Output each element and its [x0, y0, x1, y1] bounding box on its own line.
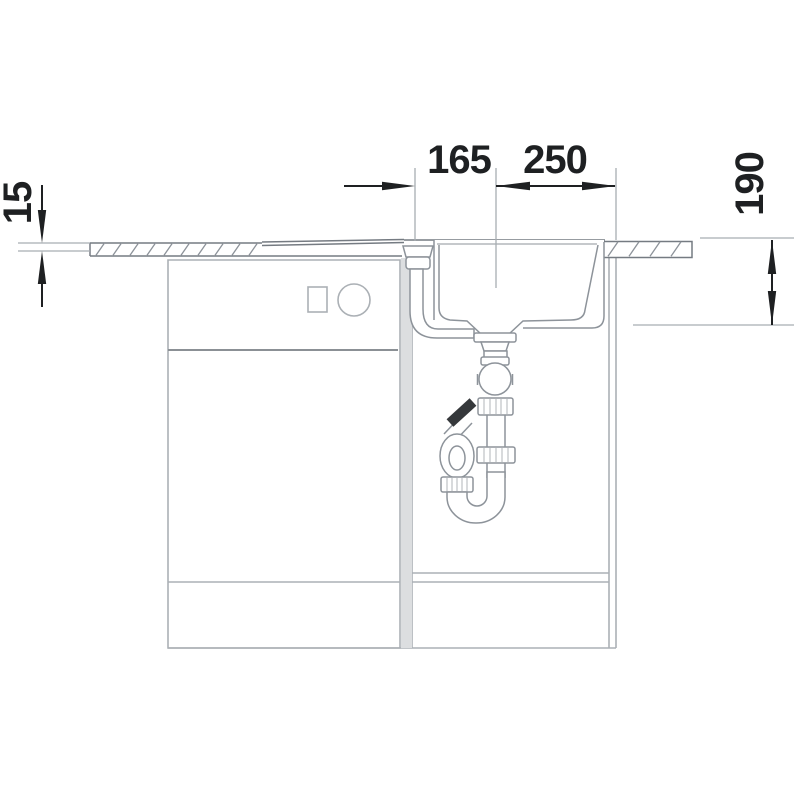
countertop-left-hatch — [96, 244, 257, 256]
ball-joint — [479, 363, 511, 395]
dimension-arrows-and-text: 165 250 15 190 — [0, 138, 776, 325]
overflow-fitting-cup — [406, 257, 430, 269]
countertop-right-outline — [601, 242, 692, 258]
overflow-fitting-flange — [403, 246, 433, 257]
control-circle-symbol — [338, 284, 370, 316]
coupling-nut-middle — [477, 447, 515, 463]
dim-label-15: 15 — [0, 181, 40, 224]
arrow-right-at-415 — [382, 182, 415, 190]
drain-neck — [481, 342, 509, 351]
dim-label-165: 165 — [427, 138, 491, 182]
technical-drawing-canvas: 165 250 15 190 — [0, 0, 800, 800]
coupling-nut-top — [478, 398, 513, 415]
countertop-right-section — [601, 242, 692, 258]
dim-label-250: 250 — [523, 138, 587, 182]
dishwasher-spigot — [447, 398, 477, 426]
arrow-up-at-240 — [768, 240, 776, 274]
arrow-up-at-251 — [38, 251, 46, 284]
arrow-right-at-616 — [582, 182, 616, 190]
countertop-right-hatch — [608, 242, 681, 257]
main-pipe-mask — [487, 414, 505, 478]
cabinet-left-outline — [168, 260, 400, 648]
drainboard-top-line — [262, 240, 404, 243]
arrow-down-at-325 — [768, 291, 776, 325]
hose-loop-outer — [440, 434, 474, 478]
dim-label-190: 190 — [728, 152, 772, 216]
drainboard-section — [262, 240, 404, 257]
sink-installation-drawing: 165 250 15 190 — [0, 0, 800, 800]
drainboard-second-line — [262, 243, 404, 246]
control-square-symbol — [308, 287, 327, 312]
drain-flange — [474, 333, 516, 342]
arrow-left-at-496 — [496, 182, 530, 190]
countertop-left-section — [90, 243, 262, 256]
cabinet-left — [168, 260, 400, 648]
coupling-nut-bottom-left — [441, 477, 473, 492]
siphon-assembly — [440, 333, 516, 523]
